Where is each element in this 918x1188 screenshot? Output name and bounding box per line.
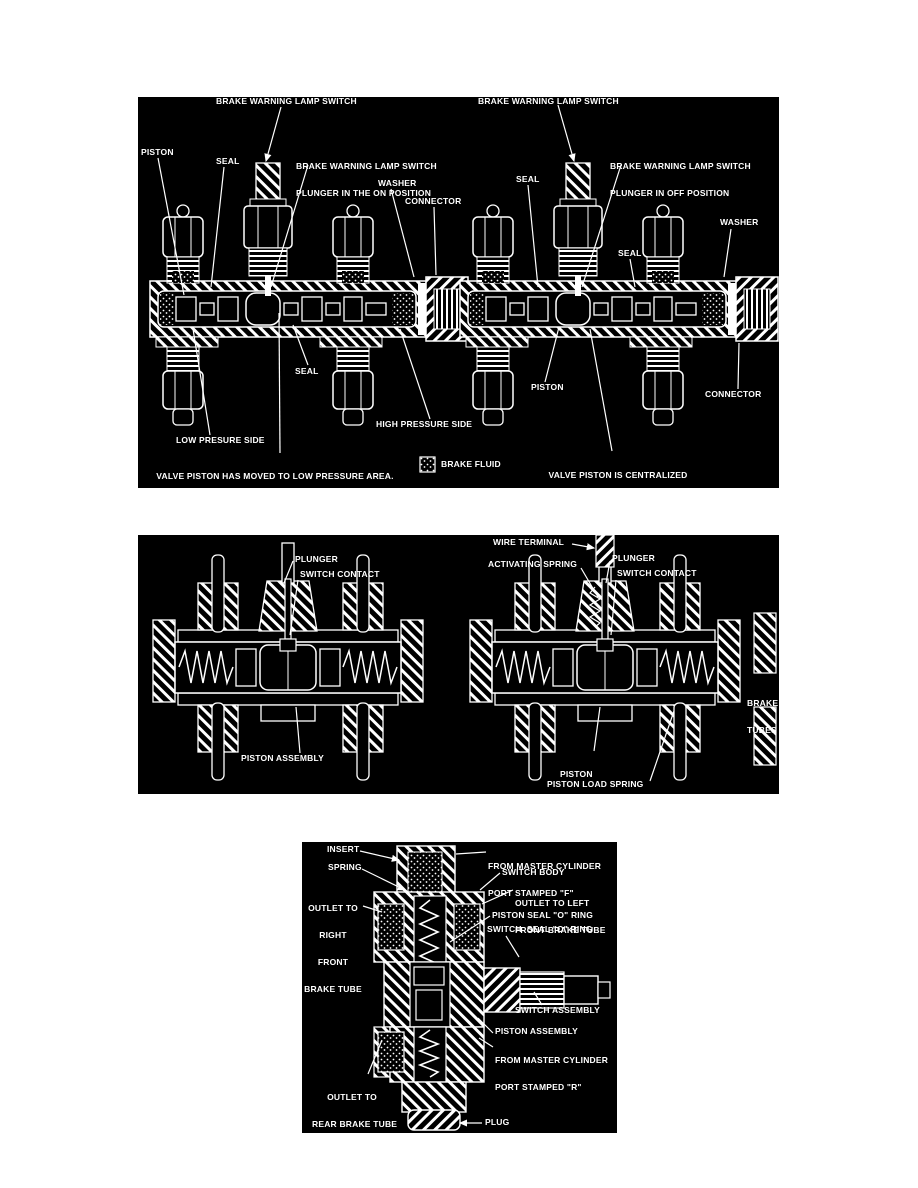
label-switch-assembly: SWITCH ASSEMBLY <box>515 1006 600 1015</box>
label-insert: INSERT <box>327 845 359 854</box>
label-from-master-r-line2: PORT STAMPED "R" <box>495 1083 608 1092</box>
label-plunger-left: PLUNGER <box>295 555 338 564</box>
label-piston-assembly-right-line1: PISTON <box>560 770 608 779</box>
label-seal-right-upper: SEAL <box>516 175 539 184</box>
figure-valve-cutaway-panel: INSERT SPRING OUTLET TO RIGHT FRONT BRAK… <box>302 842 617 1133</box>
label-outlet-right-front-line3: FRONT <box>302 958 364 967</box>
label-outlet-right-front: OUTLET TO RIGHT FRONT BRAKE TUBE <box>302 886 364 1012</box>
manual-page: { "colors": { "page_bg": "#ffffff", "pan… <box>0 0 918 1188</box>
caption-valve-centralized-line1: VALVE PISTON IS CENTRALIZED <box>490 471 746 480</box>
caption-valve-moved-line1: VALVE PISTON HAS MOVED TO LOW PRESSURE A… <box>146 472 404 481</box>
label-plunger-off: BRAKE WARNING LAMP SWITCH PLUNGER IN OFF… <box>610 144 751 216</box>
label-piston-left: PISTON <box>141 148 174 157</box>
label-outlet-rear-line2: REAR BRAKE TUBE <box>312 1120 392 1129</box>
label-from-master-r: FROM MASTER CYLINDER PORT STAMPED "R" <box>495 1038 608 1110</box>
label-high-pressure-side: HIGH PRESSURE SIDE <box>376 420 472 429</box>
label-activating-spring: ACTIVATING SPRING <box>488 560 577 569</box>
label-seal-left-upper: SEAL <box>216 157 239 166</box>
label-outlet-rear-line1: OUTLET TO <box>312 1093 392 1102</box>
label-piston-assembly: PISTON ASSEMBLY <box>495 1027 578 1036</box>
label-switch-contact-left: SWITCH CONTACT <box>300 570 380 579</box>
label-outlet-right-front-line4: BRAKE TUBE <box>302 985 364 994</box>
caption-valve-centralized-line3: PRESSURES ARE EQUALIZED <box>490 525 746 534</box>
label-piston-right: PISTON <box>531 383 564 392</box>
label-switch-left: BRAKE WARNING LAMP SWITCH <box>216 97 357 106</box>
label-piston-assembly-left: PISTON ASSEMBLY <box>241 754 324 763</box>
label-washer-right: WASHER <box>720 218 759 227</box>
label-brake-tubes-line1: BRAKE <box>747 699 778 708</box>
caption-valve-centralized-line2: PRIMARY AND SECONDARY SYSTEM <box>490 498 746 507</box>
label-connector-left: CONNECTOR <box>405 197 461 206</box>
caption-valve-moved-line2: WARNING LAMP SWITCH PLUNGER IS DEPRESSED… <box>146 499 404 508</box>
label-connector-right: CONNECTOR <box>705 390 761 399</box>
label-brake-tubes: BRAKE TUBES <box>747 681 778 753</box>
label-piston-assembly-right-line2: ASSEMBLY <box>560 797 608 806</box>
label-outlet-right-front-line2: RIGHT <box>302 931 364 940</box>
label-seal-right-mid: SEAL <box>618 249 641 258</box>
label-piston-seal-o-ring: PISTON SEAL "O" RING <box>492 911 593 920</box>
label-outlet-right-front-line1: OUTLET TO <box>302 904 364 913</box>
label-wire-terminal: WIRE TERMINAL <box>493 538 564 547</box>
label-low-pressure-side: LOW PRESURE SIDE <box>176 436 265 445</box>
brake-fluid-swatch-icon <box>420 457 435 472</box>
brake-tube-upper-shape <box>754 613 776 673</box>
label-spring: SPRING <box>328 863 362 872</box>
label-plunger-on-line1: BRAKE WARNING LAMP SWITCH <box>296 162 437 171</box>
label-from-master-r-line1: FROM MASTER CYLINDER <box>495 1056 608 1065</box>
label-outlet-rear: OUTLET TO REAR BRAKE TUBE <box>312 1075 392 1147</box>
switch-section-left <box>153 543 423 780</box>
label-plunger-off-line2: PLUNGER IN OFF POSITION <box>610 189 751 198</box>
label-washer-left: WASHER <box>378 179 417 188</box>
caption-valve-moved: VALVE PISTON HAS MOVED TO LOW PRESSURE A… <box>146 454 404 553</box>
label-plunger-off-line1: BRAKE WARNING LAMP SWITCH <box>610 162 751 171</box>
label-switch-body: SWITCH BODY <box>502 868 565 877</box>
label-switch-right: BRAKE WARNING LAMP SWITCH <box>478 97 619 106</box>
label-brake-tubes-line2: TUBES <box>747 726 778 735</box>
label-plunger-right: PLUNGER <box>612 554 655 563</box>
label-plug: PLUG <box>485 1118 509 1127</box>
figure-valve-states-panel: BRAKE WARNING LAMP SWITCH PISTON SEAL BR… <box>138 97 779 488</box>
label-switch-seal-o-ring: SWITCH SEAL "O" RING <box>487 925 593 934</box>
label-seal-left-lower: SEAL <box>295 367 318 376</box>
label-piston-load-spring: PISTON LOAD SPRING <box>547 780 643 789</box>
caption-valve-moved-line3: LIGHTING THE BRAKE WARNING LAMP. <box>146 526 404 535</box>
label-outlet-left-front-line1: OUTLET TO LEFT <box>515 899 606 908</box>
figure-switch-sections-panel: PLUNGER SWITCH CONTACT PISTON ASSEMBLY W… <box>138 535 779 794</box>
label-switch-contact-right: SWITCH CONTACT <box>617 569 697 578</box>
